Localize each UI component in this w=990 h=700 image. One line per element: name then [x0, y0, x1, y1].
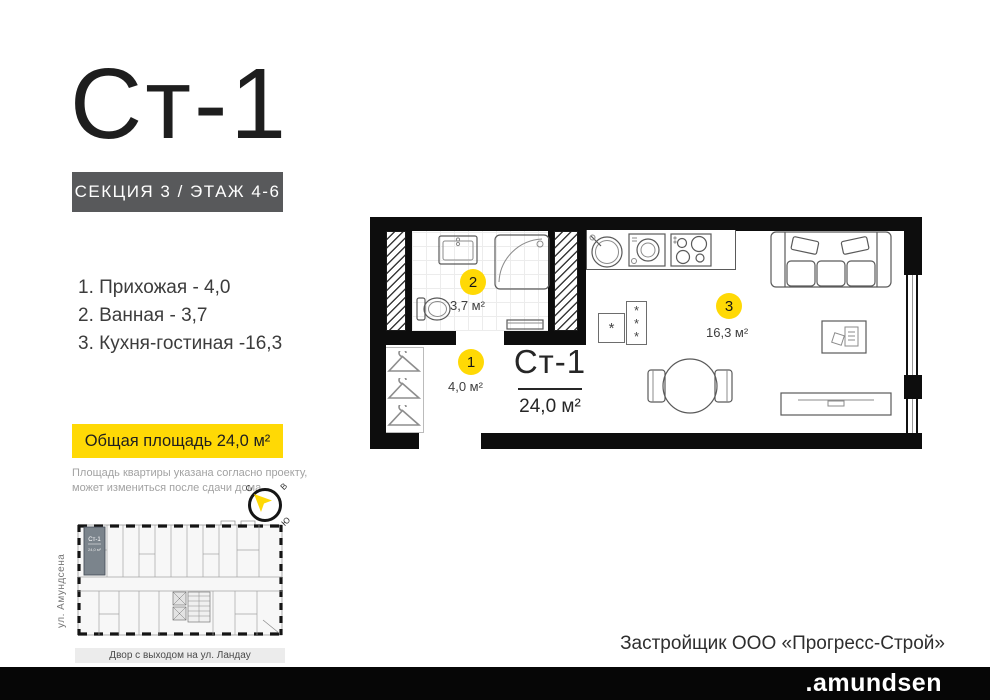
wall [904, 231, 922, 275]
ventilation-shaft [554, 231, 578, 331]
tv-stand [780, 392, 892, 416]
closet [386, 347, 424, 433]
window [906, 275, 918, 375]
window [906, 399, 918, 433]
toilet [416, 293, 452, 325]
developer-line: Застройщик ООО «Прогресс-Строй» [600, 633, 945, 655]
coat-hanger-icon [386, 405, 422, 429]
room-list: 1. Прихожая - 4,0 2. Ванная - 3,7 3. Кух… [78, 274, 282, 358]
side-table [821, 320, 867, 354]
bath-mat [506, 319, 544, 330]
key-plan-unit-label: Ст-1 [88, 537, 101, 543]
plan-unit-title: Ст-1 24,0 м² [498, 343, 602, 418]
room-marker-number: 2 [469, 274, 477, 291]
compass-north-label: С [243, 483, 254, 494]
footer-bar: .amundsen [0, 667, 990, 700]
room-area-bath: 3,7 м² [450, 298, 485, 313]
plan-unit-total-area: 24,0 м² [498, 396, 602, 418]
room-marker-hall: 1 [458, 349, 484, 375]
room-area-living: 16,3 м² [706, 325, 748, 340]
section-floor-badge-label: СЕКЦИЯ 3 / ЭТАЖ 4-6 [75, 182, 281, 202]
room-marker-number: 1 [467, 354, 475, 371]
wall [406, 231, 412, 331]
room-list-item: 2. Ванная - 3,7 [78, 302, 282, 330]
street-label: ул. Амундсена [56, 545, 67, 637]
wall [370, 217, 922, 231]
washing-machine [628, 233, 666, 267]
room-marker-living: 3 [716, 293, 742, 319]
key-plan-highlighted-unit: Ст-1 24,0 м² [84, 527, 105, 575]
kitchen-sink [588, 233, 624, 269]
brand-logo: .amundsen [806, 669, 942, 698]
cooktop [670, 233, 712, 267]
room-list-item: 3. Кухня-гостиная -16,3 [78, 330, 282, 358]
room-marker-bath: 2 [460, 269, 486, 295]
ventilation-shaft [386, 231, 406, 331]
key-plan-unit-area: 24,0 м² [88, 547, 102, 552]
coat-hanger-icon [386, 351, 422, 375]
sofa [770, 231, 892, 288]
total-area-badge-label: Общая площадь 24,0 м² [85, 432, 271, 451]
wall [481, 433, 922, 449]
floor-plan: * * * * [370, 217, 922, 449]
room-marker-number: 3 [725, 298, 733, 315]
vent-mark: * * * [626, 301, 647, 345]
compass-east-label: В [278, 481, 289, 492]
shower-cabin [494, 234, 550, 290]
plan-unit-name: Ст-1 [498, 343, 602, 381]
yard-label: Двор с выходом на ул. Ландау [75, 648, 285, 663]
brochure-page: { "header": { "title": "Ст-1", "section_… [0, 0, 990, 700]
coat-hanger-icon [386, 378, 422, 402]
wall [904, 375, 922, 399]
divider [518, 388, 582, 390]
bathroom-sink [438, 235, 478, 265]
dining-table [646, 357, 734, 415]
section-floor-badge: СЕКЦИЯ 3 / ЭТАЖ 4-6 [72, 172, 283, 212]
yard-label-text: Двор с выходом на ул. Ландау [109, 650, 250, 661]
room-area-hall: 4,0 м² [448, 379, 483, 394]
vent-mark: * [598, 313, 625, 343]
wall [370, 331, 456, 345]
wall [386, 433, 419, 449]
page-title: Ст-1 [70, 52, 289, 157]
room-list-item: 1. Прихожая - 4,0 [78, 274, 282, 302]
key-plan: Ст-1 24,0 м² [75, 520, 285, 646]
wall [578, 231, 586, 331]
total-area-badge: Общая площадь 24,0 м² [72, 424, 283, 458]
